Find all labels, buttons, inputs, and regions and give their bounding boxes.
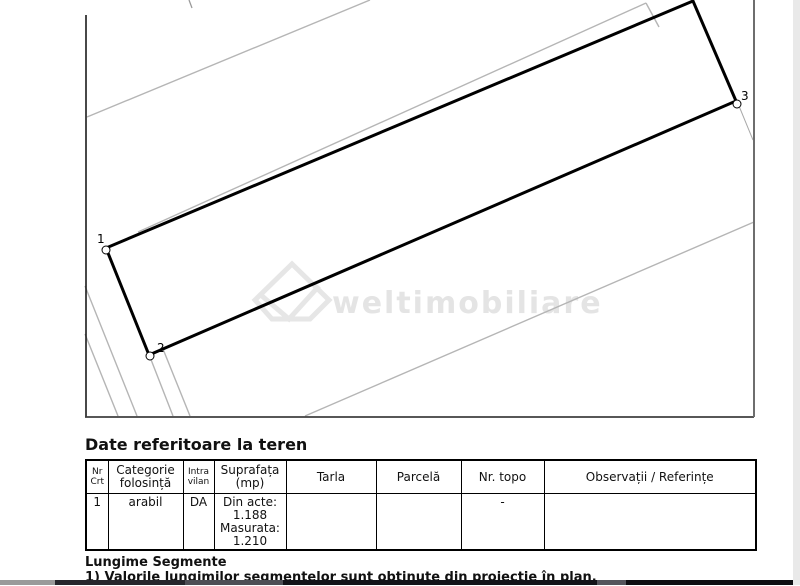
- vertex-label: 2: [157, 341, 165, 355]
- cell-nr-topo: -: [461, 494, 544, 551]
- watermark-text: weltimobiliare: [332, 286, 603, 321]
- column-header-categorie-folosinta: Categorie folosință: [108, 460, 183, 494]
- land-data-section: Date referitoare la teren Nr Crt Categor…: [85, 436, 757, 586]
- cut-off-row-segment: [597, 580, 626, 585]
- cut-off-table-row: [0, 580, 793, 585]
- table-header-row: Nr Crt Categorie folosință Intra vilan S…: [86, 460, 756, 494]
- vertex-label: 3: [741, 89, 749, 103]
- cut-off-row-segment: [283, 580, 597, 585]
- column-header-tarla: Tarla: [286, 460, 376, 494]
- side-boundary-4: [163, 349, 190, 416]
- segments-heading: Lungime Segmente: [85, 555, 757, 570]
- cell-parcela: [376, 494, 461, 551]
- cell-categorie: arabil: [108, 494, 183, 551]
- cell-suprafata: Din acte: 1.188 Masurata: 1.210: [214, 494, 286, 551]
- vertex-marker: [146, 352, 154, 360]
- cut-off-row-segment: [626, 580, 793, 585]
- column-header-parcela: Parcelă: [376, 460, 461, 494]
- vertex-marker: [102, 246, 110, 254]
- neighbor-boundary-upper: [87, 0, 370, 117]
- column-header-nr-topo: Nr. topo: [461, 460, 544, 494]
- top-tick-mark: [189, 0, 192, 8]
- cut-off-row-segment: [0, 580, 55, 585]
- land-data-table: Nr Crt Categorie folosință Intra vilan S…: [85, 459, 757, 551]
- cell-intravilan: DA: [183, 494, 214, 551]
- table-row: 1 arabil DA Din acte: 1.188 Masurata: 1.…: [86, 494, 756, 551]
- page-title: Date referitoare la teren: [85, 436, 757, 454]
- neighbor-boundary-top: [138, 3, 646, 232]
- column-header-nr-crt: Nr Crt: [86, 460, 108, 494]
- column-header-intravilan: Intra vilan: [183, 460, 214, 494]
- vertex-marker: [733, 100, 741, 108]
- column-header-suprafata: Suprafața (mp): [214, 460, 286, 494]
- cadastral-plan: weltimobiliare123: [0, 0, 800, 430]
- column-header-observatii: Observații / Referințe: [544, 460, 756, 494]
- cell-nr-crt: 1: [86, 494, 108, 551]
- cell-tarla: [286, 494, 376, 551]
- cadastral-plan-svg: weltimobiliare123: [0, 0, 800, 430]
- vertex3-leader-line: [739, 106, 753, 140]
- vertex-label: 1: [97, 232, 105, 246]
- cell-observatii: [544, 494, 756, 551]
- cut-off-row-segment: [55, 580, 185, 585]
- side-boundary-1: [85, 334, 118, 416]
- page-edge-band: [793, 0, 800, 585]
- cut-off-row-segment: [185, 580, 283, 585]
